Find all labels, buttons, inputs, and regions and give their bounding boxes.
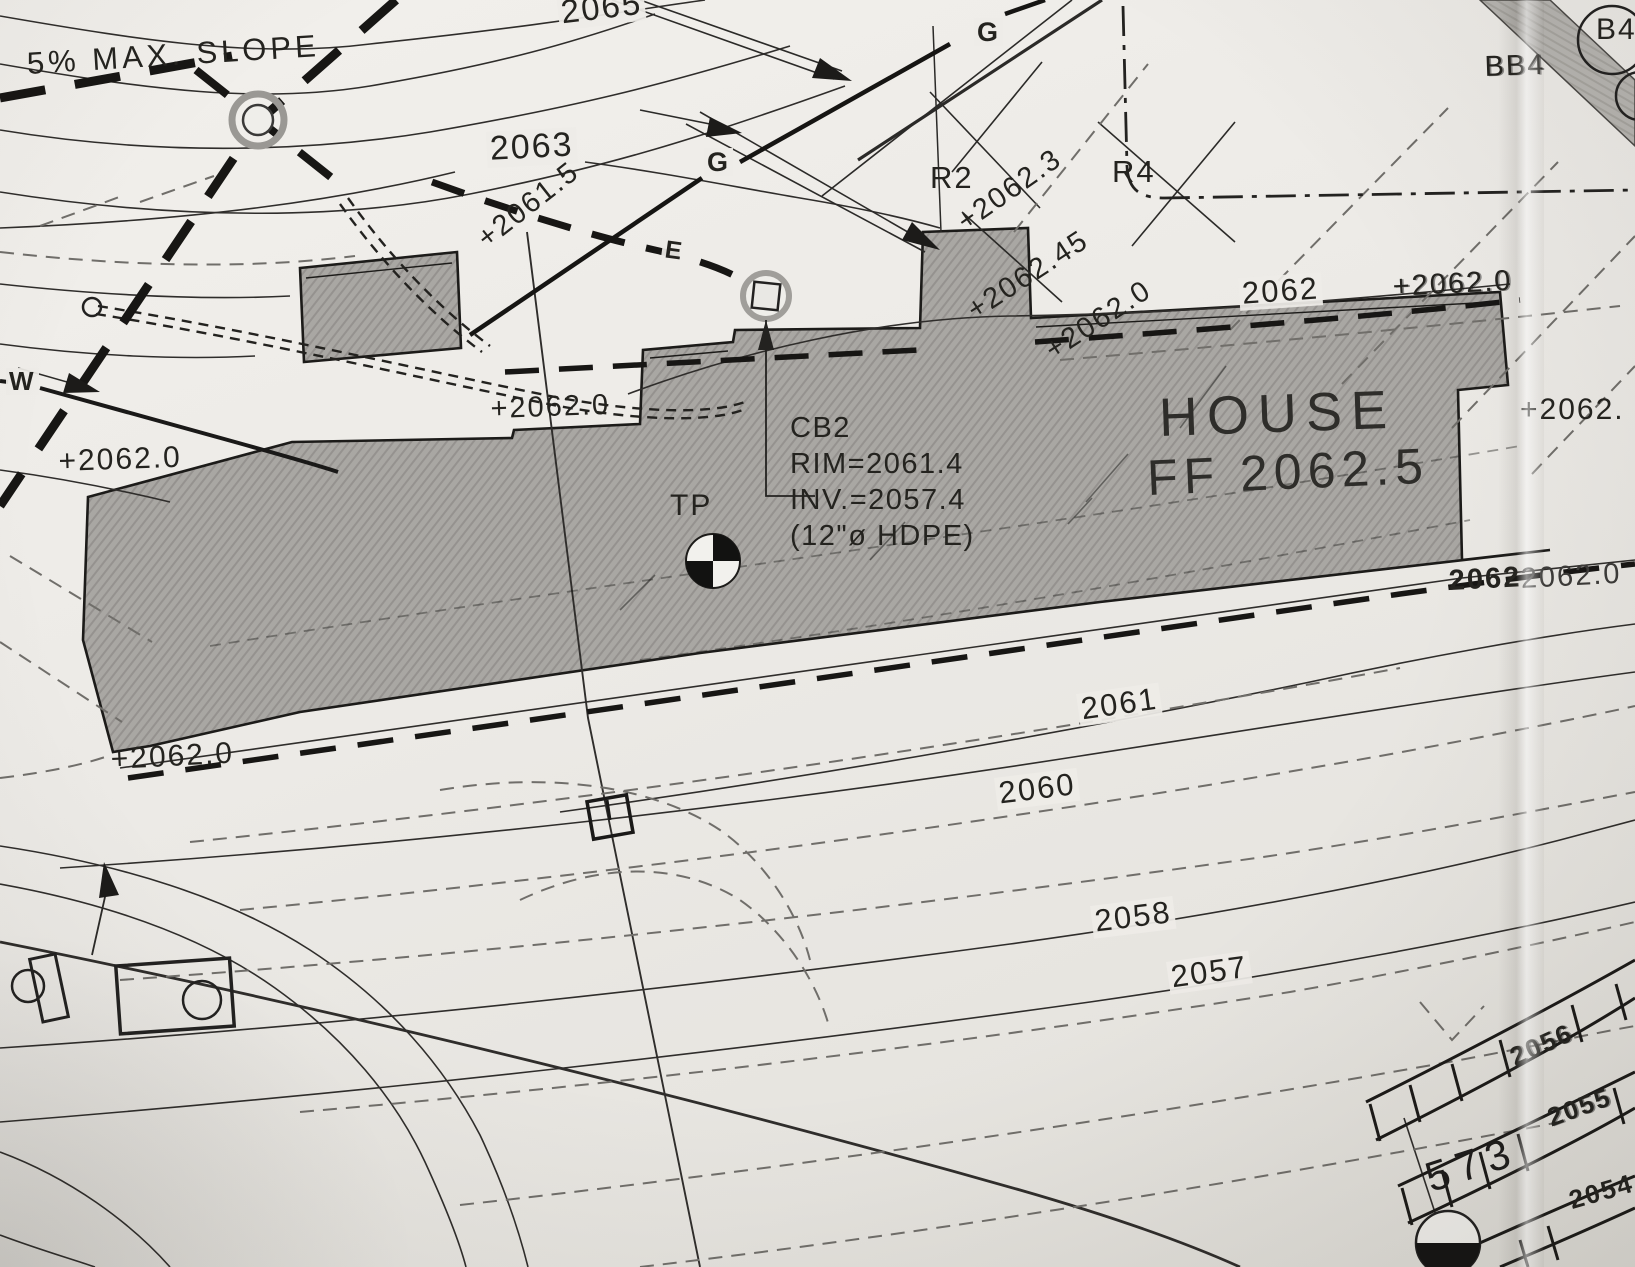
catch-basin-cb2-symbol	[743, 273, 789, 319]
manhole-symbol	[232, 94, 284, 146]
ref-label-r4: R4	[1112, 156, 1156, 189]
house-ff-label: FF 2062.5	[1146, 440, 1430, 505]
gas-line-label-2: G	[974, 18, 1003, 46]
site-plan-linework	[0, 0, 1635, 1267]
spot-elev-2062-0-bl: +2062.0	[110, 738, 235, 776]
cb2-note: CB2 RIM=2061.4 INV.=2057.4 (12"ø HDPE)	[790, 410, 975, 554]
cb2-note-line3: INV.=2057.4	[790, 482, 975, 518]
drain-inlet-symbols	[12, 954, 234, 1034]
cb2-note-line2: RIM=2061.4	[790, 446, 975, 482]
tp-benchmark-symbol	[686, 534, 740, 588]
water-line-label: W	[6, 368, 39, 395]
electric-line-label: E	[660, 236, 688, 265]
house-label: HOUSE	[1158, 382, 1397, 447]
gas-line-label-1: G	[704, 148, 733, 176]
spot-elev-2062-0-mid: +2062.0	[490, 390, 611, 425]
tp-label: TP	[670, 490, 712, 522]
contour-label-2062: 2062	[1238, 272, 1323, 310]
site-plan-photo: 5% MAX. SLOPE 2065 2063 +2061.5 G G E W …	[0, 0, 1635, 1267]
contour-label-2062-b: 2062	[1448, 562, 1522, 596]
spot-elev-2062-right: +2062.	[1520, 394, 1625, 426]
ref-label-r2: R2	[930, 162, 974, 195]
ref-label-bb4: BB4	[1484, 50, 1546, 83]
spot-elev-2062-0-tr: +2062.0	[1392, 266, 1513, 303]
spot-elev-2062-0-left: +2062.0	[58, 442, 182, 478]
cb2-note-line1: CB2	[790, 410, 975, 446]
ref-label-b4: B4	[1596, 14, 1635, 46]
cb2-note-line4: (12"ø HDPE)	[790, 518, 975, 554]
survey-point-symbol	[1416, 1211, 1480, 1267]
spot-elev-2062-0-r: 2062.0	[1520, 559, 1622, 595]
